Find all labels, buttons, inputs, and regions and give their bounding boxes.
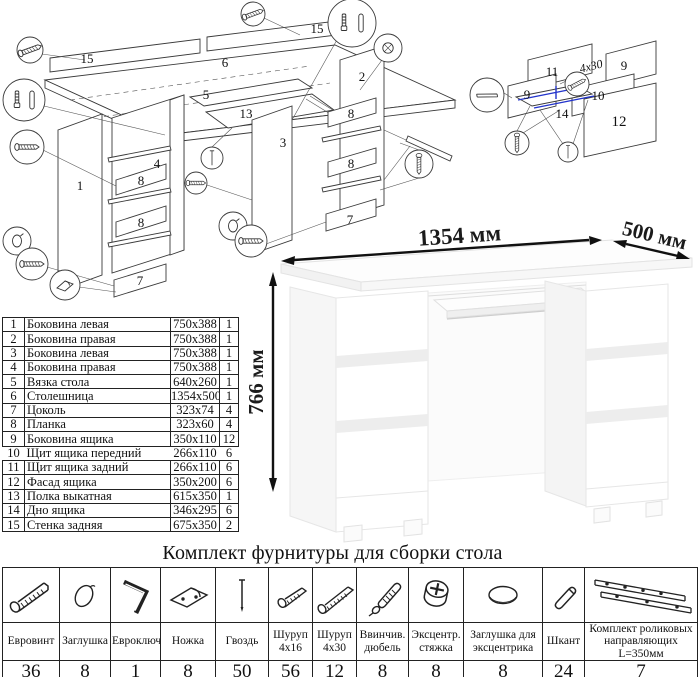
left-pedestal-parts [58,95,184,297]
part-num: 4 [3,360,25,374]
hardware-name: Ввинчив. дюбель [357,623,409,661]
part-label: 6 [222,55,229,70]
part-num: 12 [3,475,25,489]
part-qty: 4 [220,403,239,417]
part-size: 675x350 [171,518,220,532]
hardware-qty: 7 [585,661,698,677]
part-num: 7 [3,403,25,417]
hardware-qty: 36 [3,661,60,677]
cap-icon [62,570,108,620]
parts-list-table: 1Боковина левая750x3881 2Боковина правая… [2,317,239,532]
part-size: 323x60 [171,418,220,432]
part-num: 2 [3,332,25,346]
part-qty: 6 [220,446,239,460]
part-name: Дно ящика [25,503,171,517]
part-size: 750x388 [171,332,220,346]
part-size: 323x74 [171,403,220,417]
part-name: Столешница [25,389,171,403]
hardware-name: Гвоздь [216,623,269,661]
hex-key-icon [113,570,159,620]
hardware-name: Шкант [543,623,585,661]
desk-illustration: 1354 мм 500 мм 766 мм [250,210,700,550]
hardware-name: Эксцентр. стяжка [409,623,464,661]
part-name: Цоколь [25,403,171,417]
screw-in-dowel-icon [358,570,408,620]
part-size: 346x295 [171,503,220,517]
wood-dowel-icon [544,570,584,620]
hardware-qty: 50 [216,661,269,677]
part-qty: 6 [220,475,239,489]
table-row: 8Планка323x604 [3,418,239,432]
part-label: 8 [348,156,355,171]
left-pedestal [290,287,428,542]
hardware-qty: 8 [464,661,543,677]
part-num: 15 [3,518,25,532]
hardware-kit-table: Евровинт Заглушка Евроключ Ножка Гвоздь … [2,567,698,677]
part-label: 9 [621,58,628,73]
hardware-qty-row: 36 8 1 8 50 56 12 8 8 8 24 7 [3,661,698,677]
part-qty: 1 [220,346,239,360]
hardware-icon-row [3,568,698,623]
part-qty: 6 [220,503,239,517]
part-size: 1354x500 [171,389,220,403]
part-name: Щит ящика передний [25,446,171,460]
table-row: 2Боковина правая750x3881 [3,332,239,346]
hardware-kit-title: Комплект фурнитуры для сборки стола [0,542,665,565]
part-num: 10 [3,446,25,460]
hardware-name: Заглушка для эксцентрика [464,623,543,661]
part-qty: 1 [220,332,239,346]
hardware-qty: 8 [161,661,216,677]
part-qty: 1 [220,360,239,374]
part-num: 13 [3,489,25,503]
hardware-qty: 8 [357,661,409,677]
table-row: 6Столешница1354x5001 [3,389,239,403]
part-label: 9 [524,87,531,102]
table-row: 3Боковина левая750x3881 [3,346,239,360]
hardware-qty: 1 [111,661,161,677]
part-name: Полка выкатная [25,489,171,503]
part-qty: 12 [220,432,239,446]
assembly-instruction-sheet: 15 15 6 1 4 8 8 7 5 13 3 2 8 8 7 [0,0,700,677]
part-size: 266x110 [171,460,220,474]
hardware-name: Шуруп 4x30 [313,623,357,661]
part-size: 266x110 [171,446,220,460]
part-num: 6 [3,389,25,403]
part-label: 13 [240,106,253,121]
part-label: 10 [592,88,605,103]
part-qty: 1 [220,318,239,332]
hardware-qty: 8 [60,661,111,677]
part-label: 15 [81,51,94,66]
part-num: 14 [3,503,25,517]
part-size: 750x388 [171,360,220,374]
part-label: 8 [138,173,145,188]
hardware-qty: 24 [543,661,585,677]
table-row: 11Щит ящика задний266x1106 [3,460,239,474]
drawer-assembly-diagram: 11 9 9 10 14 12 4х30 [450,10,700,210]
part-name: Боковина правая [25,332,171,346]
part-num: 1 [3,318,25,332]
hardware-name: Ножка [161,623,216,661]
part-size: 750x388 [171,318,220,332]
part-name: Фасад ящика [25,475,171,489]
part-label: 7 [137,273,144,288]
part-name: Щит ящика задний [25,460,171,474]
part-qty: 4 [220,418,239,432]
table-row: 12Фасад ящика350x2006 [3,475,239,489]
part-num: 9 [3,432,25,446]
part-size: 750x388 [171,346,220,360]
part-num: 8 [3,418,25,432]
part-label: 1 [77,178,84,193]
part-qty: 1 [220,489,239,503]
part-name: Вязка стола [25,375,171,389]
part-label: 4 [154,156,161,171]
table-row: 4Боковина правая750x3881 [3,360,239,374]
table-row: 9Боковина ящика350x11012 [3,432,239,446]
table-row: 7Цоколь323x744 [3,403,239,417]
part-label: 11 [546,64,559,79]
hardware-name: Евровинт [3,623,60,661]
part-name: Боковина ящика [25,432,171,446]
hardware-qty: 12 [313,661,357,677]
part-label: 8 [348,106,355,121]
part-name: Стенка задняя [25,518,171,532]
screw-long-icon [314,570,356,620]
part-size: 615x350 [171,489,220,503]
table-row: 1Боковина левая750x3881 [3,318,239,332]
part-size: 640x260 [171,375,220,389]
part-num: 3 [3,346,25,360]
table-row: 10Щит ящика передний266x1106 [3,446,239,460]
hardware-name: Шуруп 4x16 [269,623,313,661]
hardware-name: Комплект роликовых направляющих L=350мм [585,623,698,661]
table-row: 5Вязка стола640x2601 [3,375,239,389]
part-size: 350x110 [171,432,220,446]
roller-slides-icon [587,570,695,620]
hardware-name-row: Евровинт Заглушка Евроключ Ножка Гвоздь … [3,623,698,661]
nail-icon [219,570,265,620]
confirmat-screw-icon [5,570,57,620]
part-label: 2 [359,69,366,84]
part-qty: 2 [220,518,239,532]
table-row: 14Дно ящика346x2956 [3,503,239,517]
part-qty: 6 [220,460,239,474]
part-label: 14 [556,106,570,121]
part-name: Боковина левая [25,346,171,360]
cam-cap-icon [468,570,538,620]
table-row: 13Полка выкатная615x3501 [3,489,239,503]
hardware-name: Евроключ [111,623,161,661]
foot-icon [163,570,213,620]
table-row: 15Стенка задняя675x3502 [3,518,239,532]
part-num: 5 [3,375,25,389]
screw-short-icon [270,570,312,620]
part-label: 15 [311,21,324,36]
height-dimension-label: 766 мм [244,349,268,414]
part-num: 11 [3,460,25,474]
hardware-qty: 56 [269,661,313,677]
part-qty: 1 [220,375,239,389]
right-pedestal [545,281,668,523]
cam-lock-icon [411,570,461,620]
part-name: Боковина левая [25,318,171,332]
part-label: 8 [138,215,145,230]
part-label: 12 [612,114,627,130]
part-label: 3 [280,135,287,150]
hardware-qty: 8 [409,661,464,677]
part-qty: 1 [220,389,239,403]
part-name: Боковина правая [25,360,171,374]
hardware-name: Заглушка [60,623,111,661]
part-label: 5 [203,87,210,102]
part-size: 350x200 [171,475,220,489]
part-name: Планка [25,418,171,432]
